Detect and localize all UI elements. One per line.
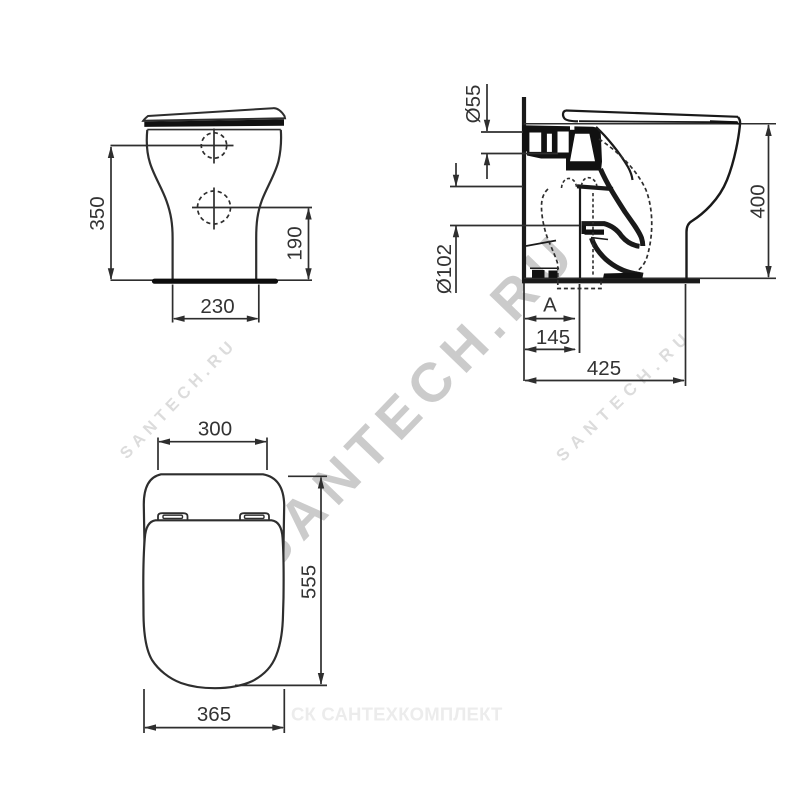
svg-text:300: 300	[198, 418, 232, 441]
svg-text:Ø55: Ø55	[462, 85, 485, 124]
svg-text:145: 145	[536, 326, 570, 349]
svg-text:190: 190	[284, 226, 307, 260]
svg-text:A: A	[543, 294, 557, 317]
svg-text:400: 400	[747, 184, 770, 218]
svg-text:425: 425	[587, 357, 621, 380]
svg-text:365: 365	[197, 703, 231, 726]
svg-text:СК САНТЕХКОМПЛЕКТ: СК САНТЕХКОМПЛЕКТ	[291, 704, 503, 725]
svg-text:555: 555	[298, 565, 321, 599]
svg-text:230: 230	[200, 295, 234, 318]
svg-text:350: 350	[86, 196, 109, 230]
svg-text:Ø102: Ø102	[433, 244, 456, 294]
